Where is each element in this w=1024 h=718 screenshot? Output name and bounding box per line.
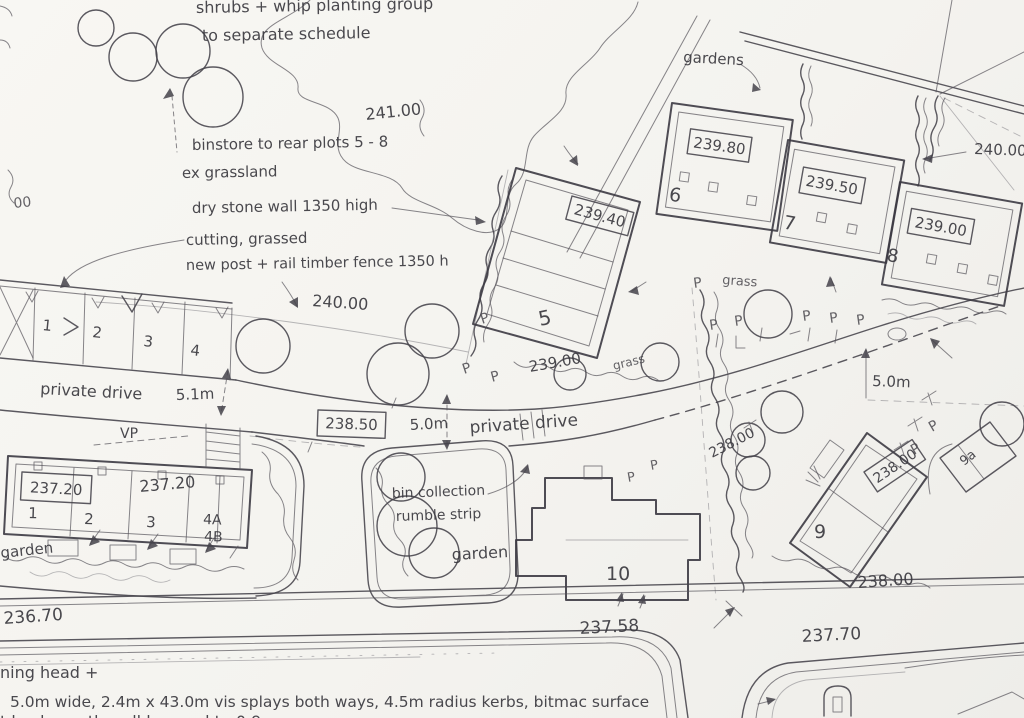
note-private-drive-left: private drive [40,379,143,403]
p-marker: P [828,310,839,327]
vp-sightline [94,436,188,445]
p-marker: P [489,368,501,386]
note-clipped-left-level: 00 [13,194,32,212]
junction-details [758,686,1024,716]
level-237-58: 237.58 [579,616,639,639]
note-grass-upper: grass [722,273,758,290]
plot6-building: 239.80 6 [656,103,792,231]
plot9-number: 9 [814,521,826,543]
note-garden-left: garden [0,539,54,562]
level-238-road: 238.00 [857,569,914,592]
parking-bay-3: 3 [143,332,154,351]
parking-bay-2: 2 [92,323,103,342]
unit3-number: 3 [146,513,156,531]
tree-group-top-left [0,6,243,127]
bin-leader-arrow [520,464,530,474]
dim-5-1m: 5.1m [176,385,215,404]
p-marker: P [708,317,719,334]
tree-group-centre [236,304,459,405]
plot5-building [473,146,646,358]
note-clipped-bottom: t back, south wall lowered to 0.9 [0,712,261,718]
parking-ticks-centre [716,328,837,348]
p-marker: P [801,308,812,325]
plot6-number: 6 [668,184,683,207]
level-239-ground: 239.00 [528,349,583,376]
plot7-building: 239.50 7 [770,140,904,263]
p-marker: P [926,417,941,435]
note-planting-line2: to separate schedule [202,23,371,45]
p-marker: P [649,458,659,474]
note-private-drive-centre: private drive [469,410,579,438]
p-marker: P [460,360,473,378]
plot5-number: 5 [536,305,553,331]
plot7-number: 7 [782,212,798,236]
note-bin-collection: bin collection [392,483,486,502]
note-garden-plot10: garden [451,542,508,564]
plot9a-number: 9a [957,447,979,469]
note-rumble-strip: rumble strip [396,506,482,525]
planting-south-of-plots [744,276,1006,340]
top-right-road-lines [740,0,1024,190]
dim-5-0m-centre: 5.0m [409,414,448,434]
dim-5-0m-right: 5.0m [872,372,911,391]
plot8-number: 8 [885,245,900,268]
note-cutting-grassed: cutting, grassed [186,229,308,249]
note-grass-plot5: grass [611,351,646,372]
parking-row [0,280,236,380]
note-access-spec: 5.0m wide, 2.4m x 43.0m vis splays both … [10,693,649,711]
level-240-right: 240.00 [974,140,1024,160]
level-236-70: 236.70 [3,605,64,629]
terrace-level-label: 237.20 [29,478,82,499]
hedge-between-plots [801,64,928,186]
note-vp: VP [120,426,138,442]
unit4b-number: 4B [204,529,223,546]
garden-island [362,441,518,607]
parking-ticks-right [744,391,936,455]
p-marker: P [626,470,636,486]
level-237-20-hand: 237.20 [139,472,196,496]
unit1-number: 1 [28,504,38,522]
terrace-garden-wall [252,436,304,596]
level-241: 241.00 [364,99,422,124]
hedge-top-right [930,96,945,160]
plot8-building: 239.00 8 [882,182,1022,306]
dimension-5-1m [217,368,231,416]
note-ex-grassland: ex grassland [182,162,278,182]
p-marker: P [733,313,744,330]
note-planting-line1: shrubs + whip planting group [196,0,434,17]
p-marker: P [855,312,866,329]
note-binstore: binstore to rear plots 5 - 8 [192,133,389,154]
note-post-rail-fence: new post + rail timber fence 1350 h [186,253,449,274]
p-marker: P [692,275,703,292]
note-turning-head: ning head + [0,663,98,682]
parking-bay-4: 4 [190,341,201,360]
drive-level-label: 238.50 [325,414,378,434]
terrace-level-box: 237.20 [21,472,92,504]
level-237-70: 237.70 [801,624,861,647]
terrace-planting [0,556,256,598]
site-plan-drawing: 239.80 6 239.50 7 239.00 8 [0,0,1024,718]
site-plan-sheet: 239.80 6 239.50 7 239.00 8 [0,0,1024,718]
plot10-number: 10 [606,563,630,585]
drive-level-box: 238.50 [317,410,386,438]
unit4a-number: 4A [203,512,222,529]
note-dry-stone-wall: dry stone wall 1350 high [192,196,378,217]
parking-bay-1: 1 [42,316,53,335]
level-240-left: 240.00 [312,291,369,314]
unit2-number: 2 [84,510,94,528]
note-gardens: gardens [683,48,745,69]
